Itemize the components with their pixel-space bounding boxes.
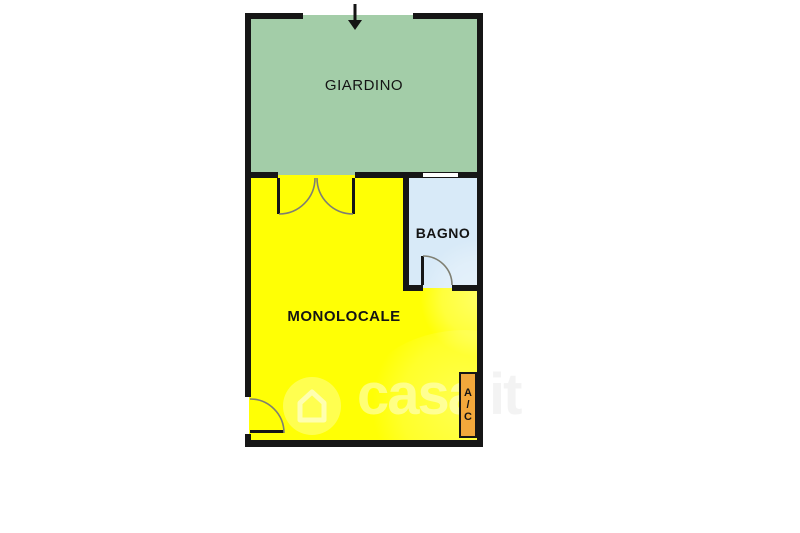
garden-area <box>249 15 479 175</box>
wall-left <box>245 13 251 397</box>
garden-label: GIARDINO <box>325 77 403 94</box>
ac-label-char: / <box>466 399 469 411</box>
bathroom-label: BAGNO <box>416 225 471 241</box>
studio-label: MONOLOCALE <box>287 308 400 325</box>
entry-door-leaf <box>250 430 284 433</box>
floorplan-image: casa it GIARDINO MONOLOCALE BAGNO A / C <box>0 0 800 533</box>
bathroom-door-leaf <box>421 256 424 285</box>
casa-watermark-suffix: it <box>489 366 520 424</box>
wall-garden-divider-left <box>245 172 278 178</box>
ac-label-char: A <box>464 387 472 399</box>
french-door-left-leaf <box>277 178 280 214</box>
wall-bathroom-bottom-left <box>403 285 423 291</box>
ac-unit: A / C <box>459 372 477 438</box>
french-door-right-leaf <box>352 178 355 214</box>
wall-bathroom-left <box>403 172 409 291</box>
wall-garden-divider-right <box>458 172 483 178</box>
wall-bottom <box>245 440 483 447</box>
wall-bathroom-bottom-right <box>452 285 483 291</box>
ac-label-char: C <box>464 411 472 423</box>
wall-right <box>477 13 483 447</box>
house-icon <box>283 377 341 435</box>
bathroom-window <box>423 172 458 178</box>
wall-garden-divider-mid <box>355 172 423 178</box>
wall-top-left <box>245 13 303 19</box>
wall-top-right <box>413 13 483 19</box>
